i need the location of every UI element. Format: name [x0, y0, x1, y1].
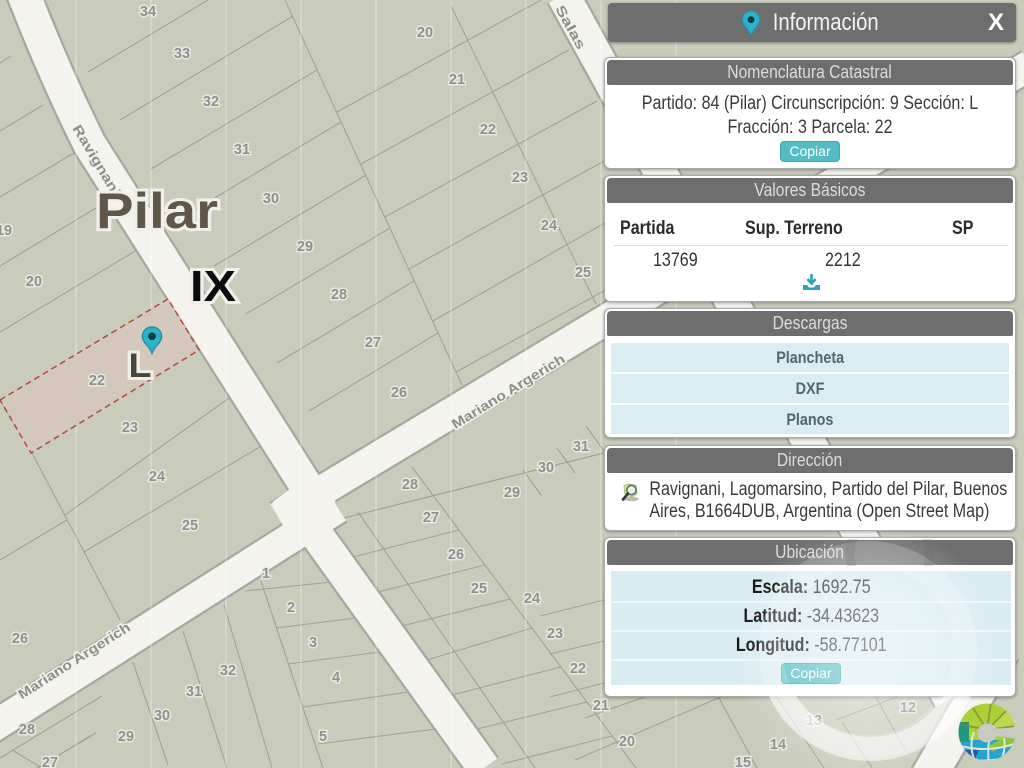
svg-text:1: 1	[262, 566, 270, 582]
svg-text:5: 5	[319, 729, 327, 745]
svg-text:L: L	[129, 347, 152, 385]
svg-text:Pilar: Pilar	[96, 183, 218, 239]
svg-text:13: 13	[806, 713, 822, 729]
svg-text:27: 27	[423, 510, 439, 526]
svg-text:29: 29	[118, 729, 134, 745]
svg-text:20: 20	[619, 734, 635, 750]
svg-text:30: 30	[154, 708, 170, 724]
svg-text:29: 29	[297, 239, 313, 255]
svg-text:19: 19	[0, 223, 12, 239]
svg-text:26: 26	[448, 547, 464, 563]
svg-text:21: 21	[593, 698, 609, 714]
svg-text:33: 33	[174, 46, 190, 62]
svg-text:23: 23	[512, 170, 528, 186]
svg-text:IX: IX	[190, 262, 236, 311]
svg-text:31: 31	[234, 142, 250, 158]
svg-text:29: 29	[504, 485, 520, 501]
svg-text:30: 30	[263, 191, 279, 207]
svg-text:26: 26	[391, 385, 407, 401]
svg-text:27: 27	[365, 335, 381, 351]
svg-text:24: 24	[541, 218, 557, 234]
svg-text:12: 12	[900, 700, 916, 716]
svg-text:31: 31	[186, 684, 202, 700]
svg-text:23: 23	[547, 626, 563, 642]
svg-text:26: 26	[12, 631, 28, 647]
svg-text:23: 23	[122, 420, 138, 436]
svg-text:32: 32	[203, 94, 219, 110]
svg-text:28: 28	[331, 287, 347, 303]
svg-text:15: 15	[735, 755, 751, 768]
svg-text:22: 22	[89, 373, 105, 389]
svg-text:28: 28	[19, 722, 35, 738]
svg-text:20: 20	[417, 25, 433, 41]
svg-text:34: 34	[140, 4, 156, 20]
svg-text:4: 4	[332, 670, 340, 686]
svg-text:28: 28	[402, 477, 418, 493]
svg-text:32: 32	[220, 663, 236, 679]
svg-text:31: 31	[573, 439, 589, 455]
svg-text:24: 24	[149, 469, 165, 485]
svg-text:30: 30	[538, 460, 554, 476]
svg-text:25: 25	[471, 581, 487, 597]
svg-text:14: 14	[770, 737, 786, 753]
svg-text:21: 21	[449, 72, 465, 88]
svg-text:2: 2	[287, 600, 295, 616]
svg-text:3: 3	[309, 635, 317, 651]
svg-text:20: 20	[26, 274, 42, 290]
svg-text:25: 25	[575, 265, 591, 281]
svg-text:24: 24	[524, 591, 540, 607]
svg-text:25: 25	[182, 518, 198, 534]
svg-text:27: 27	[42, 755, 58, 768]
svg-text:22: 22	[570, 661, 586, 677]
svg-text:22: 22	[480, 122, 496, 138]
